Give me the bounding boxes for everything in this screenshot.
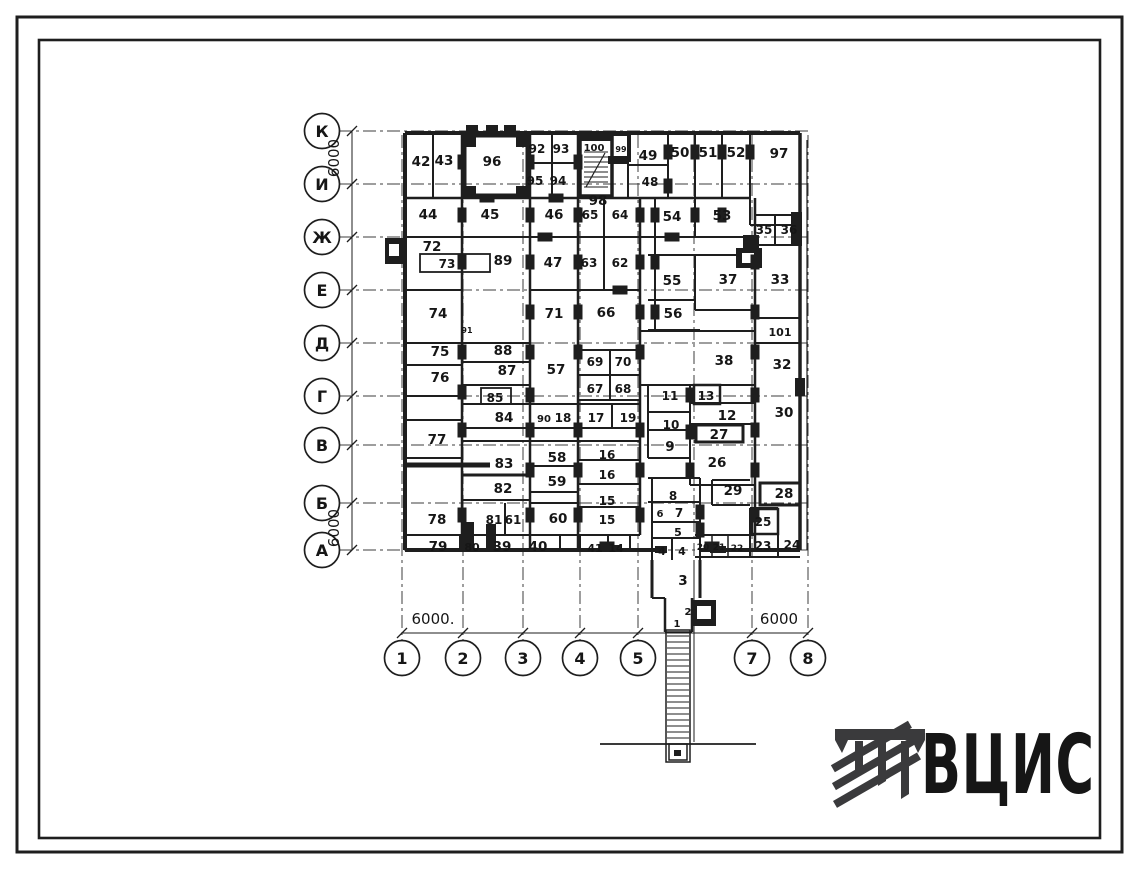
room-label-75: 75 bbox=[431, 344, 450, 360]
dimension-label: 6000 bbox=[325, 509, 343, 547]
door-pier bbox=[686, 463, 695, 478]
wall-fill bbox=[578, 133, 612, 141]
door-pier bbox=[526, 305, 535, 320]
room-label-52: 52 bbox=[727, 145, 746, 161]
axis-label-row-В: В bbox=[316, 436, 328, 455]
room-label-47: 47 bbox=[544, 255, 563, 271]
wall-notch bbox=[697, 606, 711, 619]
door-pier bbox=[651, 305, 660, 320]
door-pier bbox=[574, 345, 583, 360]
axis-label-row-Д: Д bbox=[315, 334, 329, 353]
room-label-21: 21 bbox=[713, 543, 726, 553]
room-label-45: 45 bbox=[481, 207, 500, 223]
wall-fill bbox=[795, 378, 805, 396]
room-label-65: 65 bbox=[582, 208, 599, 222]
door-pier bbox=[549, 194, 564, 203]
door-pier bbox=[651, 208, 660, 223]
room-label-25: 25 bbox=[755, 515, 772, 529]
drawing-sheet: КИЖЕДГВБА1234578600060006000.6000 424396… bbox=[0, 0, 1139, 869]
room-label-8: 8 bbox=[669, 489, 677, 503]
room-label-91: 91 bbox=[461, 326, 473, 335]
room-label-79: 79 bbox=[429, 539, 448, 555]
room-label-39: 39 bbox=[493, 539, 512, 555]
door-pier bbox=[538, 233, 553, 242]
door-pier bbox=[746, 145, 755, 160]
axis-label-col-1: 1 bbox=[396, 649, 407, 668]
axis-label-col-5: 5 bbox=[632, 649, 643, 668]
door-pier bbox=[665, 233, 680, 242]
room-label-78: 78 bbox=[428, 512, 447, 528]
room-label-10: 10 bbox=[663, 418, 680, 432]
room-label-95: 95 bbox=[527, 174, 544, 188]
room-label-29: 29 bbox=[724, 483, 743, 499]
room-label-15: 15 bbox=[599, 513, 616, 527]
door-pier bbox=[458, 208, 467, 223]
door-pier bbox=[526, 345, 535, 360]
room-label-17: 17 bbox=[588, 411, 605, 425]
room-label-27: 27 bbox=[710, 427, 729, 443]
room-label-76: 76 bbox=[431, 370, 450, 386]
door-pier bbox=[526, 388, 535, 403]
door-pier bbox=[751, 388, 760, 403]
room-label-24: 24 bbox=[784, 538, 801, 552]
room-label-83: 83 bbox=[495, 456, 514, 472]
door-pier bbox=[574, 305, 583, 320]
wall-fill bbox=[516, 186, 526, 196]
room-label-19: 19 bbox=[620, 411, 637, 425]
room-label-16: 16 bbox=[599, 448, 616, 462]
floor-plan-drawing: КИЖЕДГВБА1234578600060006000.6000 424396… bbox=[0, 0, 1139, 869]
wall-fill bbox=[486, 125, 498, 134]
room-label-46: 46 bbox=[545, 207, 564, 223]
room-label-13: 13 bbox=[698, 389, 715, 403]
room-label-93: 93 bbox=[553, 142, 570, 156]
room-label-32: 32 bbox=[773, 357, 792, 373]
room-label-87: 87 bbox=[498, 363, 517, 379]
door-pier bbox=[696, 505, 705, 520]
room-label-101: 101 bbox=[769, 326, 792, 339]
room-label-90: 90 bbox=[537, 414, 551, 425]
door-pier bbox=[526, 423, 535, 438]
room-label-50: 50 bbox=[671, 145, 690, 161]
wall-fill bbox=[466, 137, 476, 147]
room-label-42: 42 bbox=[412, 154, 431, 170]
door-pier bbox=[526, 155, 535, 170]
room-label-92: 92 bbox=[529, 142, 546, 156]
room-label-15: 15 bbox=[599, 494, 616, 508]
axis-label-row-К: К bbox=[315, 122, 328, 141]
axis-label-col-3: 3 bbox=[517, 649, 528, 668]
door-pier bbox=[574, 423, 583, 438]
room-label-60: 60 bbox=[549, 511, 568, 527]
room-label-94: 94 bbox=[550, 174, 567, 188]
room-label-66: 66 bbox=[597, 305, 616, 321]
door-pier bbox=[751, 345, 760, 360]
room-label-18: 18 bbox=[555, 411, 572, 425]
door-pier bbox=[636, 208, 645, 223]
room-label-82: 82 bbox=[494, 481, 513, 497]
axis-label-row-Ж: Ж bbox=[312, 228, 332, 247]
door-pier bbox=[526, 208, 535, 223]
room-label-3: 3 bbox=[678, 573, 687, 589]
door-pier bbox=[636, 423, 645, 438]
wall-fill bbox=[504, 125, 516, 134]
door-pier bbox=[691, 208, 700, 223]
room-label-55: 55 bbox=[663, 273, 682, 289]
room-label-69: 69 bbox=[587, 355, 604, 369]
room-label-6: 6 bbox=[657, 509, 664, 520]
room-label-51: 51 bbox=[699, 145, 718, 161]
door-pier bbox=[526, 508, 535, 523]
door-pier bbox=[574, 508, 583, 523]
room-label-70: 70 bbox=[615, 355, 632, 369]
room-label-36: 36 bbox=[781, 223, 798, 237]
room-label-73: 73 bbox=[439, 257, 456, 271]
room-label-38: 38 bbox=[715, 353, 734, 369]
room-label-7: 7 bbox=[675, 506, 683, 520]
room-label-63: 63 bbox=[581, 256, 598, 270]
room-label-57: 57 bbox=[547, 362, 566, 378]
room-label-85: 85 bbox=[487, 391, 504, 405]
vcis-logo-icon bbox=[817, 721, 928, 808]
room-label-53: 53 bbox=[713, 208, 732, 224]
room-label-43: 43 bbox=[435, 153, 454, 169]
wall-fill bbox=[608, 156, 628, 164]
room-label-81: 81 bbox=[486, 513, 503, 527]
door-pier bbox=[686, 425, 695, 440]
room-label-54: 54 bbox=[663, 209, 682, 225]
door-pier bbox=[613, 286, 628, 295]
room-label-49: 49 bbox=[639, 148, 658, 164]
door-pier bbox=[664, 179, 673, 194]
room-label-97: 97 bbox=[770, 146, 789, 162]
door-pier bbox=[636, 345, 645, 360]
door-pier bbox=[751, 255, 760, 270]
room-label-89: 89 bbox=[494, 253, 513, 269]
room-label-77: 77 bbox=[428, 432, 447, 448]
door-pier bbox=[526, 463, 535, 478]
dimension-label: 6000. bbox=[412, 610, 455, 628]
room-label-80: 80 bbox=[464, 541, 480, 554]
room-label-20: 20 bbox=[697, 543, 710, 553]
axis-label-row-Г: Г bbox=[317, 387, 327, 406]
room-label-48: 48 bbox=[642, 175, 659, 189]
vcis-logo: ВЦИС bbox=[817, 718, 1095, 813]
room-label-11: 11 bbox=[662, 389, 679, 403]
room-label-99: 99 bbox=[615, 145, 627, 154]
door-pier bbox=[458, 423, 467, 438]
room-label-64: 64 bbox=[612, 208, 629, 222]
room-label-33: 33 bbox=[771, 272, 790, 288]
door-pier bbox=[458, 508, 467, 523]
room-label-74: 74 bbox=[429, 306, 448, 322]
room-label-61: 61 bbox=[505, 513, 522, 527]
door-pier bbox=[651, 255, 660, 270]
room-label-68: 68 bbox=[615, 382, 632, 396]
room-label-23: 23 bbox=[755, 539, 772, 553]
room-label-84: 84 bbox=[495, 410, 514, 426]
room-label-44: 44 bbox=[419, 207, 438, 223]
axis-label-col-2: 2 bbox=[457, 649, 468, 668]
door-pier bbox=[686, 388, 695, 403]
room-label-59: 59 bbox=[548, 474, 567, 490]
door-pier bbox=[636, 463, 645, 478]
axis-label-col-4: 4 bbox=[574, 649, 585, 668]
room-label-35: 35 bbox=[756, 223, 773, 237]
room-label-37: 37 bbox=[719, 272, 738, 288]
door-pier bbox=[751, 305, 760, 320]
door-pier bbox=[458, 385, 467, 400]
room-label-4: 4 bbox=[678, 545, 686, 558]
wall-fill bbox=[466, 125, 478, 134]
wall-notch bbox=[389, 244, 399, 256]
door-pier bbox=[696, 523, 705, 538]
axis-label-col-8: 8 bbox=[802, 649, 813, 668]
room-label-5: 5 bbox=[674, 526, 682, 539]
room-label-28: 28 bbox=[775, 486, 794, 502]
room-label-12: 12 bbox=[718, 408, 737, 424]
door-pier bbox=[458, 155, 467, 170]
door-pier bbox=[480, 194, 495, 203]
door-pier bbox=[458, 255, 467, 270]
room-label-9: 9 bbox=[665, 439, 674, 455]
room-label-58: 58 bbox=[548, 450, 567, 466]
door-pier bbox=[636, 305, 645, 320]
room-label-96: 96 bbox=[483, 154, 502, 170]
door-pier bbox=[751, 423, 760, 438]
room-label-88: 88 bbox=[494, 343, 513, 359]
axis-label-row-Е: Е bbox=[317, 281, 328, 300]
room-label-2: 2 bbox=[685, 607, 692, 618]
room-label-30: 30 bbox=[775, 405, 794, 421]
door-pier bbox=[526, 255, 535, 270]
door-pier bbox=[636, 255, 645, 270]
dimension-label: 6000 bbox=[325, 139, 343, 177]
wall-fill bbox=[674, 750, 681, 756]
door-pier bbox=[458, 345, 467, 360]
room-label-72: 72 bbox=[423, 239, 442, 255]
room-label-26: 26 bbox=[708, 455, 727, 471]
axis-label-col-7: 7 bbox=[746, 649, 757, 668]
room-label-67: 67 bbox=[587, 382, 604, 396]
dimension-label: 6000 bbox=[760, 610, 798, 628]
room-label-41: 41 bbox=[587, 542, 602, 555]
door-pier bbox=[574, 155, 583, 170]
wall-fill bbox=[466, 186, 476, 196]
room-label-100: 100 bbox=[584, 143, 605, 154]
room-label-1: 1 bbox=[674, 619, 681, 630]
room-label-62: 62 bbox=[612, 256, 629, 270]
room-label-56: 56 bbox=[664, 306, 683, 322]
room-label-4: 4 bbox=[658, 545, 666, 558]
door-pier bbox=[718, 145, 727, 160]
room-label-16: 16 bbox=[599, 468, 616, 482]
door-pier bbox=[574, 463, 583, 478]
door-pier bbox=[636, 508, 645, 523]
door-pier bbox=[751, 463, 760, 478]
vcis-logo-text: ВЦИС bbox=[921, 718, 1095, 813]
wall-fill bbox=[516, 137, 526, 147]
room-label-22: 22 bbox=[731, 544, 744, 554]
room-label-14: 14 bbox=[608, 542, 624, 555]
room-label-98: 98 bbox=[589, 193, 608, 209]
room-label-40: 40 bbox=[529, 539, 548, 555]
room-label-71: 71 bbox=[545, 306, 564, 322]
